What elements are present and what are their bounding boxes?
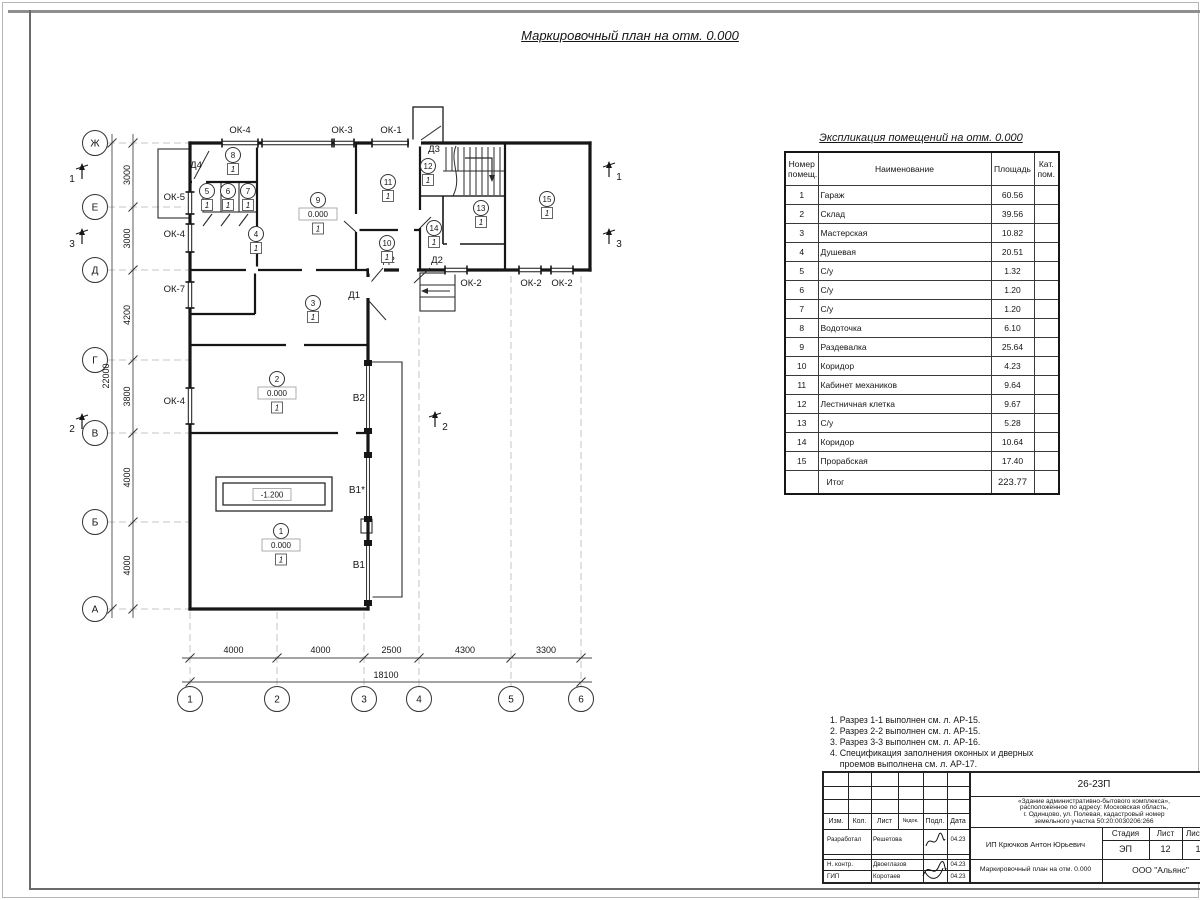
axis-label: 6 <box>578 695 584 706</box>
room-name-cell: Мастерская <box>818 224 991 243</box>
room-name-cell: С/у <box>818 281 991 300</box>
axis-label: 5 <box>508 695 514 706</box>
room-number-cell: 11 <box>785 376 818 395</box>
axis-label: Е <box>92 203 99 214</box>
role-label-ncontrol: Н. контр. <box>827 862 853 868</box>
axis-label: Б <box>92 518 99 529</box>
table-row: 6С/у1.20 <box>785 281 1059 300</box>
role-date-gip: 04.23 <box>947 874 969 880</box>
section-mark-number: 2 <box>69 424 75 435</box>
room-name-cell: Гараж <box>818 186 991 205</box>
axis-label: Д <box>92 266 99 277</box>
axis-label: В <box>92 429 99 440</box>
room-area-cell: 9.67 <box>991 395 1034 414</box>
table-row: 3Мастерская10.82 <box>785 224 1059 243</box>
level-mark: 0.000 <box>308 210 329 219</box>
room-number: 5 <box>205 187 210 196</box>
window-gap <box>445 266 467 275</box>
level-mark: 0.000 <box>271 541 292 550</box>
company-name: ООО "Альянс" <box>1102 866 1200 875</box>
room-name-cell: Склад <box>818 205 991 224</box>
window-gap <box>519 266 541 275</box>
room-cat-cell <box>1034 186 1059 205</box>
gate-label: В1 <box>353 560 366 571</box>
room-name-cell: Кабинет механиков <box>818 376 991 395</box>
note-line: 1. Разрез 1-1 выполнен см. л. АР-15. <box>830 715 1090 726</box>
section-mark-number: 1 <box>69 174 75 185</box>
room-name-cell: Лестничная клетка <box>818 395 991 414</box>
gate-gap <box>364 546 373 600</box>
sheets-value: 17 <box>1182 845 1200 854</box>
note-line: 3. Разрез 3-3 выполнен см. л. АР-16. <box>830 737 1090 748</box>
room-number: 6 <box>226 187 231 196</box>
dimension-value: 3800 <box>122 386 132 406</box>
room-number: 9 <box>316 196 321 205</box>
room-number: 4 <box>254 230 259 239</box>
sheet-label: Лист <box>1149 830 1182 838</box>
room-cat-cell <box>1034 205 1059 224</box>
room-area-cell: 5.28 <box>991 414 1034 433</box>
window-gap <box>222 139 258 148</box>
section-mark-number: 1 <box>616 172 622 183</box>
window-label: ОК-4 <box>164 229 185 240</box>
room-cat-cell <box>1034 357 1059 376</box>
explication-title: Экспликация помещений на отм. 0.000 <box>784 132 1058 144</box>
dimension-value: 4200 <box>122 305 132 325</box>
door-leaf <box>369 301 386 320</box>
total-empty-cell <box>785 471 818 495</box>
room-name-cell: С/у <box>818 300 991 319</box>
dimension-value: 4000 <box>310 645 330 655</box>
table-row: 15Прорабская17.40 <box>785 452 1059 471</box>
door-label: Д1 <box>348 290 360 301</box>
col-header-number: Номер помещ. <box>785 152 818 186</box>
gate-jamb <box>364 516 372 522</box>
window-gap <box>262 139 332 148</box>
floor-type-number: 1 <box>231 165 235 174</box>
role-name-gip: Коротаев <box>873 874 900 880</box>
sheets-label: Листов <box>1186 830 1200 838</box>
dimension-value: 4300 <box>455 645 475 655</box>
window-label: ОК-4 <box>229 125 250 136</box>
level-mark: -1.200 <box>261 491 284 500</box>
room-number-cell: 2 <box>785 205 818 224</box>
col-header-name: Наименование <box>818 152 991 186</box>
door-gap <box>409 140 421 147</box>
room-name-cell: Водоточка <box>818 319 991 338</box>
rev-header-data: Дата <box>947 818 969 825</box>
role-name-ncontrol: Двоеглазов <box>873 862 906 868</box>
window-label: ОК-5 <box>164 192 185 203</box>
gate-label: В1* <box>349 485 365 496</box>
room-cat-cell <box>1034 433 1059 452</box>
role-date-developer: 04.23 <box>947 837 969 843</box>
room-number-cell: 3 <box>785 224 818 243</box>
table-row: 7С/у1.20 <box>785 300 1059 319</box>
room-table-body: 1Гараж60.562Склад39.563Мастерская10.824Д… <box>785 186 1059 495</box>
object-line-4: земельного участка 50:20:0030206:266 <box>974 819 1200 826</box>
table-row: 11Кабинет механиков9.64 <box>785 376 1059 395</box>
dimension-value: 3000 <box>122 165 132 185</box>
room-name-cell: С/у <box>818 414 991 433</box>
table-row: 12Лестничная клетка9.67 <box>785 395 1059 414</box>
room-number-cell: 8 <box>785 319 818 338</box>
door-gap <box>399 267 417 274</box>
room-cat-cell <box>1034 376 1059 395</box>
room-cat-cell <box>1034 395 1059 414</box>
rev-header-podl: Подл. <box>923 818 947 825</box>
room-number-cell: 4 <box>785 243 818 262</box>
axis-label: А <box>92 605 99 616</box>
room-area-cell: 1.20 <box>991 281 1034 300</box>
table-total-row: Итог223.77 <box>785 471 1059 495</box>
room-name-cell: Душевая <box>818 243 991 262</box>
room-area-cell: 25.64 <box>991 338 1034 357</box>
room-number-cell: 15 <box>785 452 818 471</box>
window-label: ОК-3 <box>331 125 352 136</box>
room-area-cell: 10.82 <box>991 224 1034 243</box>
section-mark-number: 3 <box>616 239 622 250</box>
room-cat-cell <box>1034 452 1059 471</box>
table-row: 1Гараж60.56 <box>785 186 1059 205</box>
room-name-cell: Прорабская <box>818 452 991 471</box>
floor-type-number: 1 <box>279 556 283 565</box>
floor-type-number: 1 <box>275 404 279 413</box>
window-gap <box>551 266 573 275</box>
gate-jamb <box>364 428 372 434</box>
room-name-cell: Коридор <box>818 357 991 376</box>
rev-header-ndok: №док. <box>898 819 923 825</box>
door-leaf <box>421 126 441 140</box>
room-number-cell: 13 <box>785 414 818 433</box>
note-line: 4. Спецификация заполнения оконных и две… <box>830 748 1090 759</box>
gate-jamb <box>364 452 372 458</box>
level-mark: 0.000 <box>267 389 288 398</box>
walls-interior <box>190 143 505 433</box>
window-gap <box>186 224 195 252</box>
floor-type-number: 1 <box>479 218 483 227</box>
floor-type-number: 1 <box>545 209 549 218</box>
table-row: 4Душевая20.51 <box>785 243 1059 262</box>
table-row: 14Коридор10.64 <box>785 433 1059 452</box>
room-name-cell: Раздевалка <box>818 338 991 357</box>
room-cat-cell <box>1034 281 1059 300</box>
stage-value: ЭП <box>1102 845 1149 854</box>
room-number-cell: 7 <box>785 300 818 319</box>
room-number: 7 <box>246 187 251 196</box>
window-gap <box>334 139 354 148</box>
col-header-area: Площадь <box>991 152 1034 186</box>
window-label: ОК-2 <box>551 278 572 289</box>
gate-jamb <box>364 540 372 546</box>
window-gap <box>186 192 195 214</box>
rev-header-izm: Изм. <box>824 818 848 825</box>
dimension-value: 3000 <box>122 228 132 248</box>
signature-gip <box>920 857 948 882</box>
room-cat-cell <box>1034 243 1059 262</box>
window-gap <box>186 388 195 424</box>
axis-label: Ж <box>90 139 100 150</box>
room-area-cell: 20.51 <box>991 243 1034 262</box>
rev-header-kol: Кол. <box>848 818 871 825</box>
room-cat-cell <box>1034 224 1059 243</box>
axis-label: Г <box>92 356 98 367</box>
room-cat-cell <box>1034 414 1059 433</box>
floor-type-number: 1 <box>316 225 320 234</box>
door-label: Д4 <box>190 160 202 171</box>
dimension-total: 22000 <box>101 363 111 388</box>
note-line: проемов выполнена см. л. АР-17. <box>830 759 1090 770</box>
plan-generated-labels: 123456ЖЕДГВБА400040002500430033001810030… <box>69 125 622 712</box>
section-mark-number: 3 <box>69 239 75 250</box>
room-number-cell: 14 <box>785 433 818 452</box>
sheet-value: 12 <box>1149 845 1182 854</box>
room-area-cell: 39.56 <box>991 205 1034 224</box>
role-label-gip: ГИП <box>827 874 839 880</box>
axis-label: 4 <box>416 695 422 706</box>
room-area-cell: 60.56 <box>991 186 1034 205</box>
note-line: 2. Разрез 2-2 выполнен см. л. АР-15. <box>830 726 1090 737</box>
floor-type-number: 1 <box>311 313 315 322</box>
dimension-value: 3300 <box>536 645 556 655</box>
window-label: ОК-1 <box>380 125 401 136</box>
floor-type-number: 1 <box>432 238 436 247</box>
room-cat-cell <box>1034 300 1059 319</box>
axis-label: 2 <box>274 695 280 706</box>
gate-jamb <box>364 360 372 366</box>
window-gap <box>372 139 408 148</box>
room-area-cell: 9.64 <box>991 376 1034 395</box>
role-name-developer: Решетова <box>873 837 902 843</box>
axis-grid-lines <box>108 143 581 686</box>
axis-label: 1 <box>187 695 193 706</box>
window-label: ОК-2 <box>520 278 541 289</box>
client-name: ИП Крючков Антон Юрьевич <box>969 841 1102 849</box>
floor-type-number: 1 <box>246 201 250 210</box>
room-number-cell: 10 <box>785 357 818 376</box>
room-number: 15 <box>543 195 552 204</box>
room-cat-cell <box>1034 262 1059 281</box>
total-cat-cell <box>1034 471 1059 495</box>
room-number-cell: 5 <box>785 262 818 281</box>
door-label: Д2 <box>431 255 443 266</box>
room-number: 3 <box>311 299 316 308</box>
room-number: 12 <box>424 162 433 171</box>
room-area-cell: 10.64 <box>991 433 1034 452</box>
dimension-value: 4000 <box>122 555 132 575</box>
room-number-cell: 12 <box>785 395 818 414</box>
table-row: 8Водоточка6.10 <box>785 319 1059 338</box>
dimension-value: 4000 <box>223 645 243 655</box>
room-number: 11 <box>384 178 393 187</box>
room-number: 1 <box>279 527 284 536</box>
table-row: 2Склад39.56 <box>785 205 1059 224</box>
signature-developer <box>923 830 947 853</box>
room-number: 14 <box>430 224 439 233</box>
floor-type-number: 1 <box>205 201 209 210</box>
table-row: 13С/у5.28 <box>785 414 1059 433</box>
room-name-cell: Коридор <box>818 433 991 452</box>
room-area-cell: 1.20 <box>991 300 1034 319</box>
total-label-cell: Итог <box>818 471 991 495</box>
door-gap <box>365 277 372 298</box>
rev-header-list: Лист <box>871 818 898 825</box>
floor-type-number: 1 <box>226 201 230 210</box>
floor-type-number: 1 <box>386 192 390 201</box>
room-explication-table: Номер помещ. Наименование Площадь Кат. п… <box>784 151 1060 495</box>
room-number-cell: 6 <box>785 281 818 300</box>
role-label-developer: Разработал <box>827 837 861 843</box>
title-block: Изм. Кол. Лист №док. Подл. Дата Разработ… <box>822 771 1200 884</box>
table-header-row: Номер помещ. Наименование Площадь Кат. п… <box>785 152 1059 186</box>
role-date-ncontrol: 04.23 <box>947 862 969 868</box>
floor-type-number: 1 <box>426 176 430 185</box>
room-area-cell: 4.23 <box>991 357 1034 376</box>
col-header-cat: Кат. пом. <box>1034 152 1059 186</box>
dimension-value: 2500 <box>381 645 401 655</box>
room-number-cell: 9 <box>785 338 818 357</box>
room-area-cell: 6.10 <box>991 319 1034 338</box>
table-row: 10Коридор4.23 <box>785 357 1059 376</box>
section-mark-number: 2 <box>442 422 448 433</box>
floor-type-number: 1 <box>254 244 258 253</box>
doc-number: 26-23П <box>969 780 1200 790</box>
door-label: Д3 <box>428 144 440 155</box>
table-row: 5С/у1.32 <box>785 262 1059 281</box>
room-area-cell: 17.40 <box>991 452 1034 471</box>
gate-label: В2 <box>353 393 366 404</box>
floor-type-number: 1 <box>385 253 389 262</box>
window-label: ОК-4 <box>164 396 185 407</box>
window-gap <box>186 282 195 308</box>
room-cat-cell <box>1034 338 1059 357</box>
room-number: 2 <box>275 375 280 384</box>
room-number: 13 <box>477 204 486 213</box>
room-name-cell: С/у <box>818 262 991 281</box>
room-number-cell: 1 <box>785 186 818 205</box>
room-area-cell: 1.32 <box>991 262 1034 281</box>
axis-label: 3 <box>361 695 367 706</box>
stage-label: Стадия <box>1102 830 1149 838</box>
gate-jamb <box>364 600 372 606</box>
dimension-lines <box>112 134 592 682</box>
room-number: 8 <box>231 151 236 160</box>
room-number: 10 <box>383 239 392 248</box>
table-row: 9Раздевалка25.64 <box>785 338 1059 357</box>
dimension-total: 18100 <box>373 670 398 680</box>
total-area-cell: 223.77 <box>991 471 1034 495</box>
drawing-sheet: { "page": { "title": "Маркировочный план… <box>0 0 1200 900</box>
dimension-value: 4000 <box>122 467 132 487</box>
window-label: ОК-2 <box>460 278 481 289</box>
room-cat-cell <box>1034 319 1059 338</box>
sheet-title: Маркировочный план на отм. 0.000 <box>969 867 1102 874</box>
window-label: ОК-7 <box>164 284 185 295</box>
